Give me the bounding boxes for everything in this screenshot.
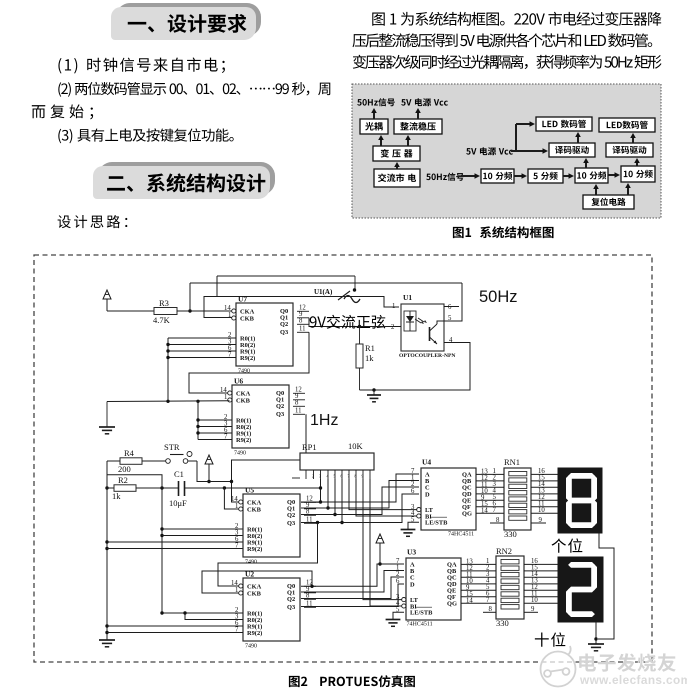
svg-text:7: 7 [493, 507, 497, 514]
svg-text:14: 14 [224, 305, 231, 312]
svg-text:LE/STB: LE/STB [425, 520, 448, 527]
svg-text:RN2: RN2 [496, 546, 512, 556]
svg-text:74HC4511: 74HC4511 [448, 532, 474, 538]
svg-text:10K: 10K [348, 441, 364, 451]
svg-text:Q3: Q3 [287, 604, 295, 611]
svg-text:7490: 7490 [234, 451, 246, 457]
svg-text:5: 5 [411, 516, 415, 523]
svg-text:C1: C1 [174, 469, 184, 479]
svg-text:2: 2 [391, 324, 395, 331]
svg-text:CKA: CKA [247, 499, 262, 506]
svg-text:50Hz: 50Hz [479, 288, 518, 306]
svg-text:D: D [425, 491, 430, 498]
svg-text:Q3: Q3 [276, 411, 284, 418]
svg-text:3: 3 [319, 475, 321, 479]
svg-text:QG: QG [447, 601, 457, 608]
svg-text:1k: 1k [112, 491, 121, 501]
svg-text:U1(A): U1(A) [314, 288, 333, 296]
svg-text:8: 8 [489, 606, 493, 613]
svg-text:6: 6 [341, 475, 343, 479]
svg-text:RN1: RN1 [504, 457, 520, 467]
svg-text:1: 1 [235, 503, 238, 510]
svg-text:2: 2 [411, 481, 415, 488]
svg-text:www.elecfans.com: www.elecfans.com [579, 673, 687, 687]
svg-text:1: 1 [228, 312, 231, 319]
svg-text:R9(2): R9(2) [240, 355, 255, 362]
svg-text:R3: R3 [159, 298, 169, 308]
svg-text:9: 9 [362, 475, 364, 479]
svg-text:CKB: CKB [236, 397, 251, 404]
svg-text:11: 11 [299, 326, 306, 333]
svg-text:U4: U4 [422, 458, 431, 467]
svg-text:1Hz: 1Hz [310, 412, 338, 429]
svg-text:R4: R4 [124, 448, 135, 458]
svg-text:R9(2): R9(2) [236, 437, 251, 444]
svg-text:200: 200 [118, 464, 131, 474]
svg-text:14: 14 [220, 387, 227, 394]
svg-text:4: 4 [327, 475, 329, 479]
svg-text:7: 7 [486, 597, 490, 604]
svg-text:6: 6 [396, 578, 400, 585]
svg-text:6: 6 [448, 304, 452, 311]
svg-text:8: 8 [295, 400, 299, 407]
svg-text:OPTOCOUPLER-NPN: OPTOCOUPLER-NPN [399, 353, 455, 359]
svg-text:R9(2): R9(2) [247, 546, 262, 553]
svg-text:4.7K: 4.7K [153, 315, 171, 325]
svg-text:U6: U6 [234, 377, 243, 386]
svg-text:1k: 1k [365, 353, 374, 363]
svg-text:RP1: RP1 [302, 442, 317, 452]
svg-text:Q2: Q2 [287, 596, 295, 603]
svg-text:5: 5 [396, 606, 400, 613]
svg-text:Q2: Q2 [280, 321, 288, 328]
svg-text:R9(2): R9(2) [247, 630, 262, 637]
svg-text:Q3: Q3 [287, 520, 295, 527]
svg-text:330: 330 [496, 618, 509, 628]
svg-text:U7: U7 [238, 295, 247, 304]
svg-text:74HC4511: 74HC4511 [407, 622, 433, 628]
svg-text:7490: 7490 [245, 644, 257, 650]
svg-text:330: 330 [504, 529, 517, 539]
svg-text:1: 1 [392, 303, 395, 310]
svg-text:CKA: CKA [236, 390, 251, 397]
svg-text:10: 10 [538, 507, 545, 514]
svg-text:9: 9 [531, 606, 535, 613]
svg-text:1: 1 [224, 394, 227, 401]
svg-text:C: C [410, 574, 415, 581]
svg-text:QG: QG [462, 511, 472, 518]
svg-text:11: 11 [295, 408, 302, 415]
svg-text:6: 6 [411, 488, 415, 495]
svg-text:CKA: CKA [240, 308, 255, 315]
svg-text:Q3: Q3 [280, 329, 288, 336]
svg-text:9: 9 [539, 517, 543, 524]
svg-text:R1: R1 [365, 343, 375, 353]
svg-text:C: C [425, 484, 430, 491]
svg-text:2: 2 [312, 475, 314, 479]
svg-text:CKB: CKB [247, 590, 262, 597]
svg-text:U1: U1 [403, 293, 412, 302]
svg-text:8: 8 [496, 517, 500, 524]
svg-text:5: 5 [334, 475, 336, 479]
svg-text:R2: R2 [118, 475, 128, 485]
svg-text:U5: U5 [245, 486, 254, 495]
svg-text:7: 7 [348, 475, 350, 479]
svg-text:Q2: Q2 [276, 403, 284, 410]
svg-text:LE/STB: LE/STB [410, 610, 433, 617]
svg-text:Q2: Q2 [287, 512, 295, 519]
svg-text:CKB: CKB [247, 506, 262, 513]
svg-text:D: D [410, 581, 415, 588]
svg-text:STR: STR [164, 442, 180, 452]
svg-text:8: 8 [355, 475, 357, 479]
svg-text:7: 7 [235, 543, 239, 550]
svg-text:CKA: CKA [247, 583, 262, 590]
svg-text:14: 14 [231, 496, 238, 503]
svg-text:7490: 7490 [238, 369, 250, 375]
svg-text:U3: U3 [407, 548, 416, 557]
svg-text:CKB: CKB [240, 315, 255, 322]
svg-text:10: 10 [531, 597, 538, 604]
svg-text:2: 2 [396, 571, 400, 578]
svg-text:10μF: 10μF [169, 498, 187, 508]
svg-text:8: 8 [299, 318, 303, 325]
